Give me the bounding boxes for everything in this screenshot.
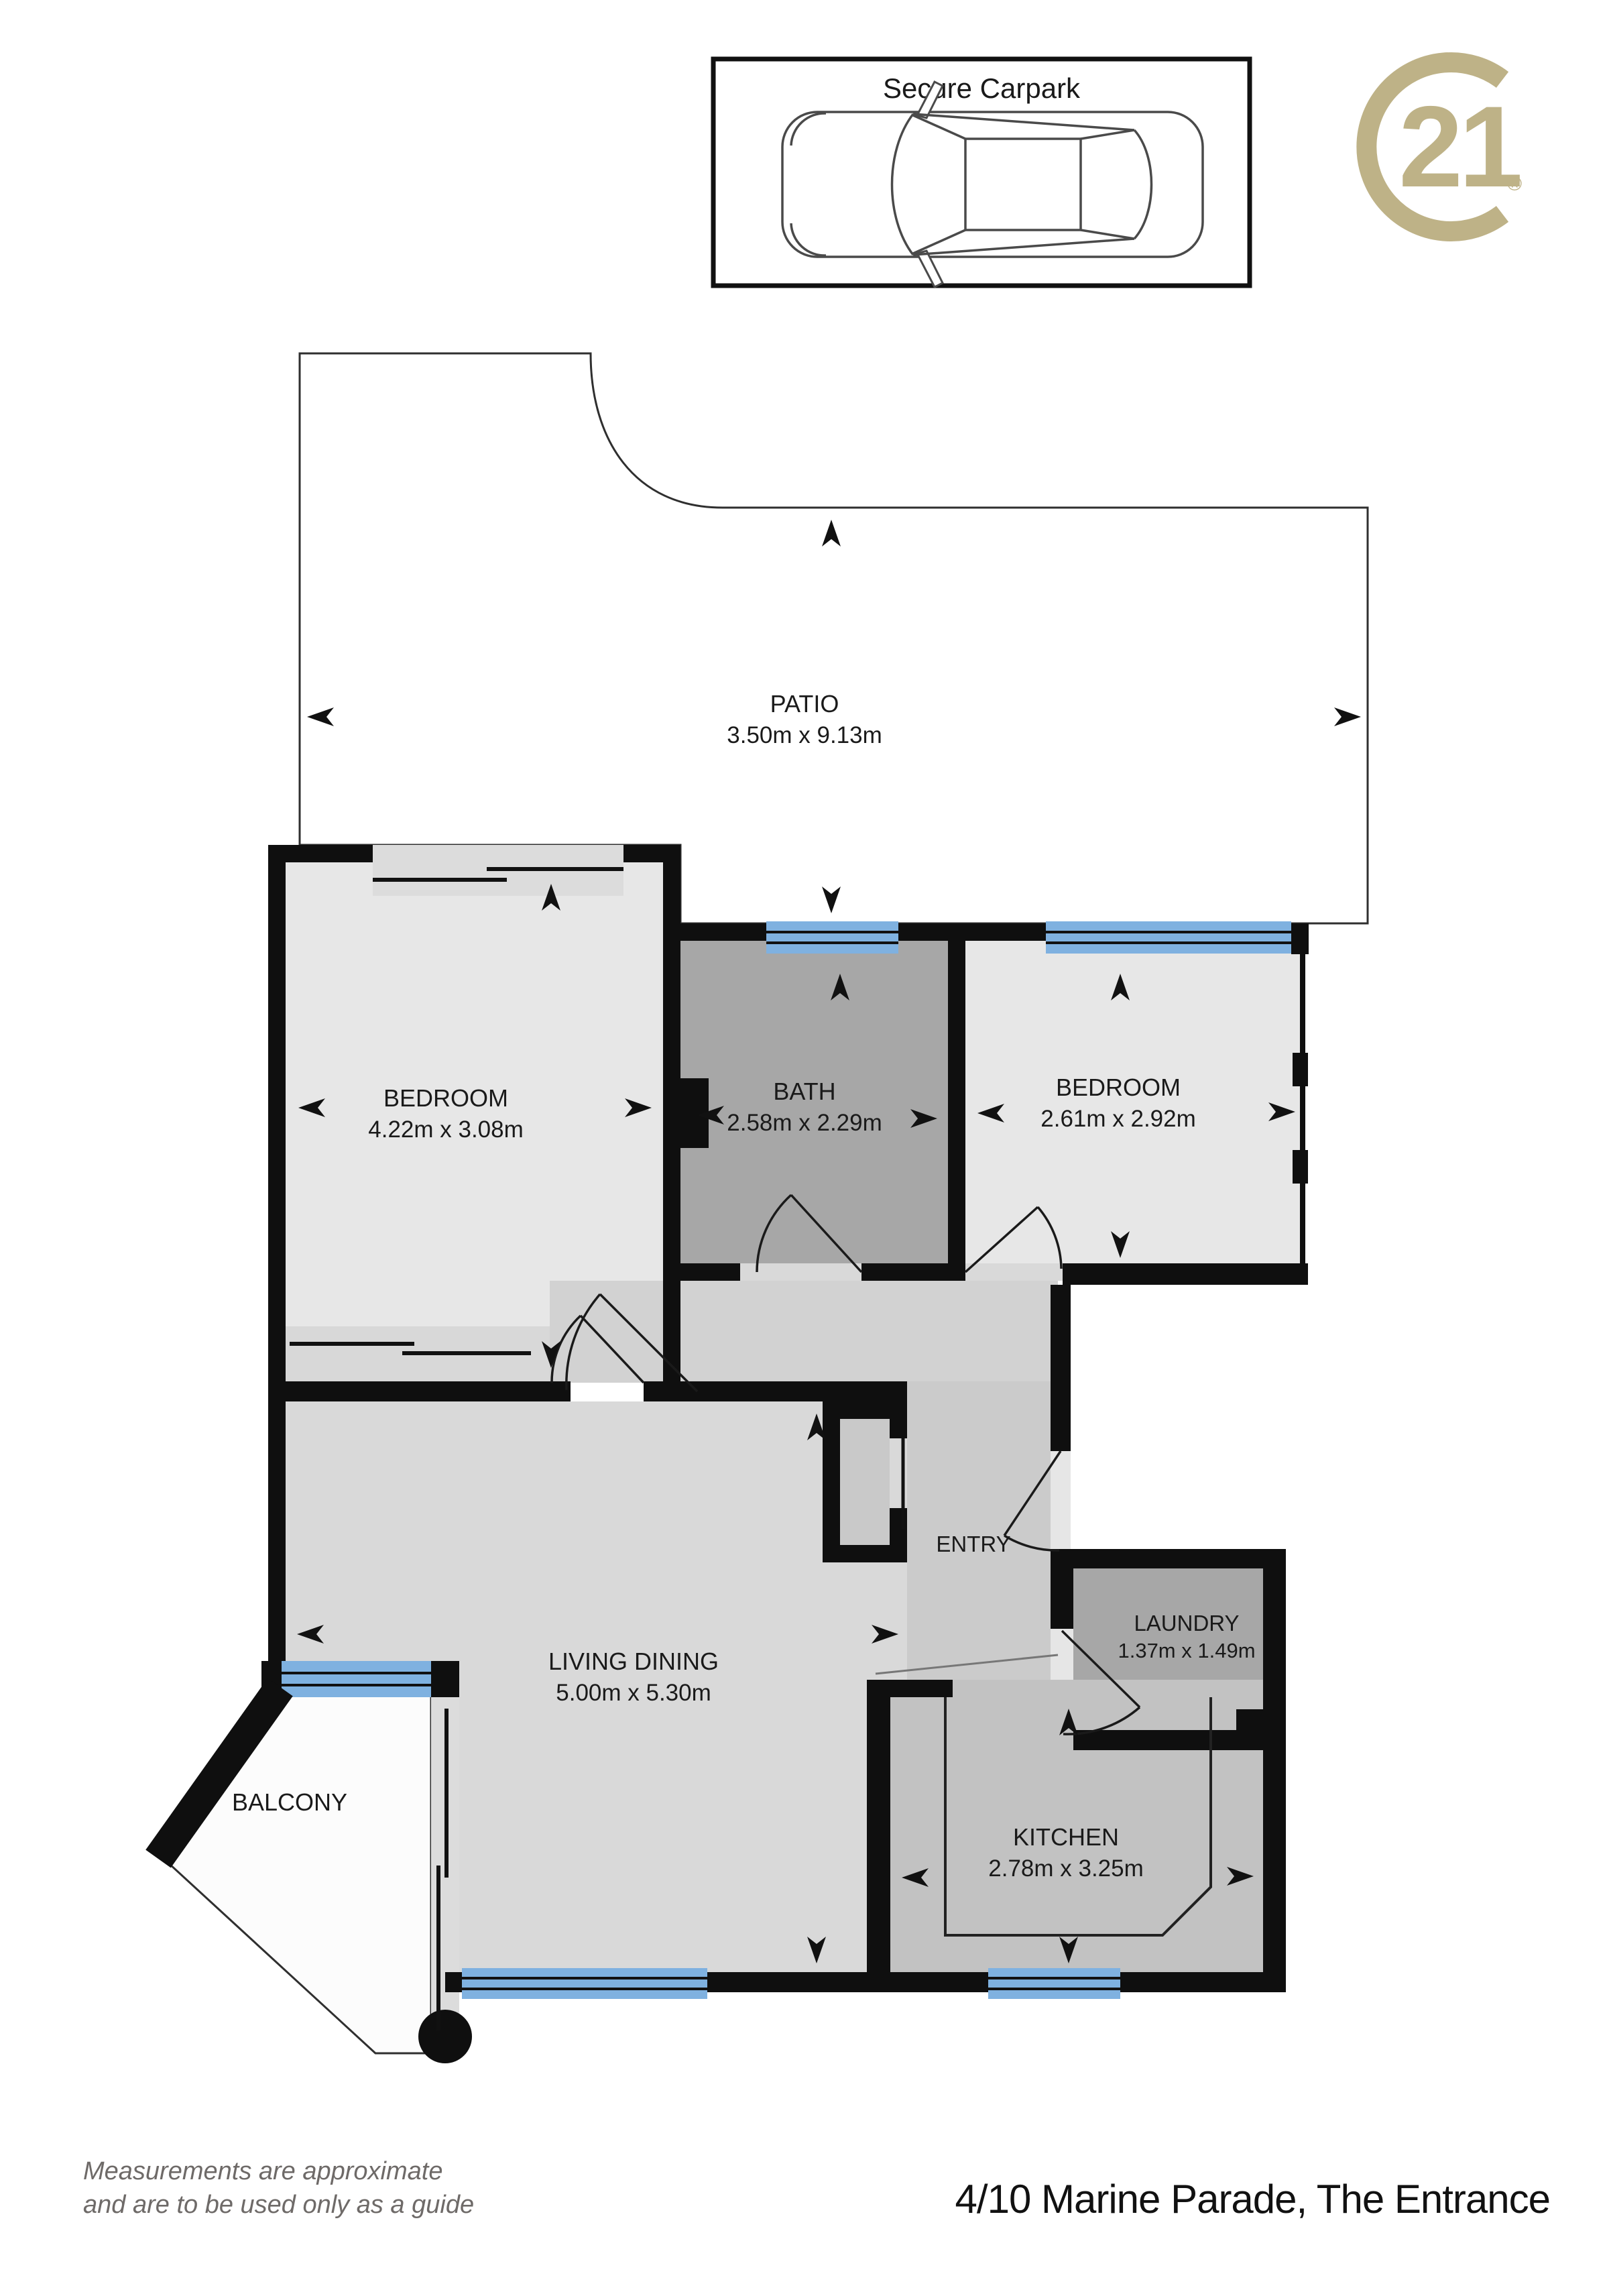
registered-mark: ® <box>1507 173 1522 195</box>
balcony-label: BALCONY <box>232 1788 347 1816</box>
bath-window <box>766 921 898 954</box>
laundry-label: LAUNDRY <box>1134 1611 1239 1635</box>
bay-post <box>418 2010 472 2063</box>
kitchen-window <box>988 1968 1120 1999</box>
floorplan-page: { "carpark": { "title": "Secure Carpark"… <box>0 0 1609 2296</box>
entry-label: ENTRY <box>936 1532 1010 1556</box>
bedroom2-label: BEDROOM <box>1056 1074 1181 1101</box>
patio-label: PATIO <box>770 690 839 717</box>
kitchen-dims: 2.78m x 3.25m <box>988 1855 1144 1882</box>
front-door-floor <box>1051 1451 1071 1549</box>
patio-area: PATIO 3.50m x 9.13m <box>300 353 1368 923</box>
logo-number: 21 <box>1398 82 1520 211</box>
living-dims: 5.00m x 5.30m <box>556 1680 711 1706</box>
bedroom1-label: BEDROOM <box>383 1084 508 1112</box>
bedroom1-dims: 4.22m x 3.08m <box>368 1116 524 1143</box>
bath-dims: 2.58m x 2.29m <box>727 1110 882 1136</box>
bath-label: BATH <box>773 1078 835 1105</box>
closet-floor <box>840 1419 890 1545</box>
arrow-up-icon <box>822 520 841 547</box>
living-bottom-window <box>462 1968 707 1999</box>
address-title: 4/10 Marine Parade, The Entrance <box>955 2177 1550 2222</box>
bedroom2-dims: 2.61m x 2.92m <box>1040 1106 1196 1132</box>
living-label: LIVING DINING <box>548 1648 719 1675</box>
kitchen-label: KITCHEN <box>1013 1823 1119 1851</box>
entry-floor <box>907 1381 1058 1680</box>
hallway-floor <box>550 1281 1058 1383</box>
bedroom2-floor <box>965 941 1300 1263</box>
disclaimer-line1: Measurements are approximate <box>83 2157 442 2185</box>
patio-dims: 3.50m x 9.13m <box>727 722 882 748</box>
carpark-box: Secure Carpark <box>713 59 1250 287</box>
laundry-dims: 1.37m x 1.49m <box>1118 1639 1255 1662</box>
bedroom2-door-floor <box>965 1263 1063 1281</box>
bath-door-floor <box>740 1263 861 1281</box>
bedroom2-window <box>1046 921 1291 954</box>
floorplan-canvas: Secure Carpark 21 ® PATIO 3.50m x 9.13m <box>0 0 1609 2296</box>
century21-logo: 21 ® <box>1366 62 1522 231</box>
carpark-title: Secure Carpark <box>883 72 1081 104</box>
arrow-left-icon <box>307 707 334 726</box>
balcony-floor <box>161 1693 431 2053</box>
arrow-down-icon <box>822 886 841 913</box>
arrow-right-icon <box>1334 707 1361 726</box>
disclaimer-line2: and are to be used only as a guide <box>83 2191 474 2219</box>
footer: Measurements are approximate and are to … <box>83 2157 1550 2222</box>
living-bay-window <box>278 1661 431 1697</box>
